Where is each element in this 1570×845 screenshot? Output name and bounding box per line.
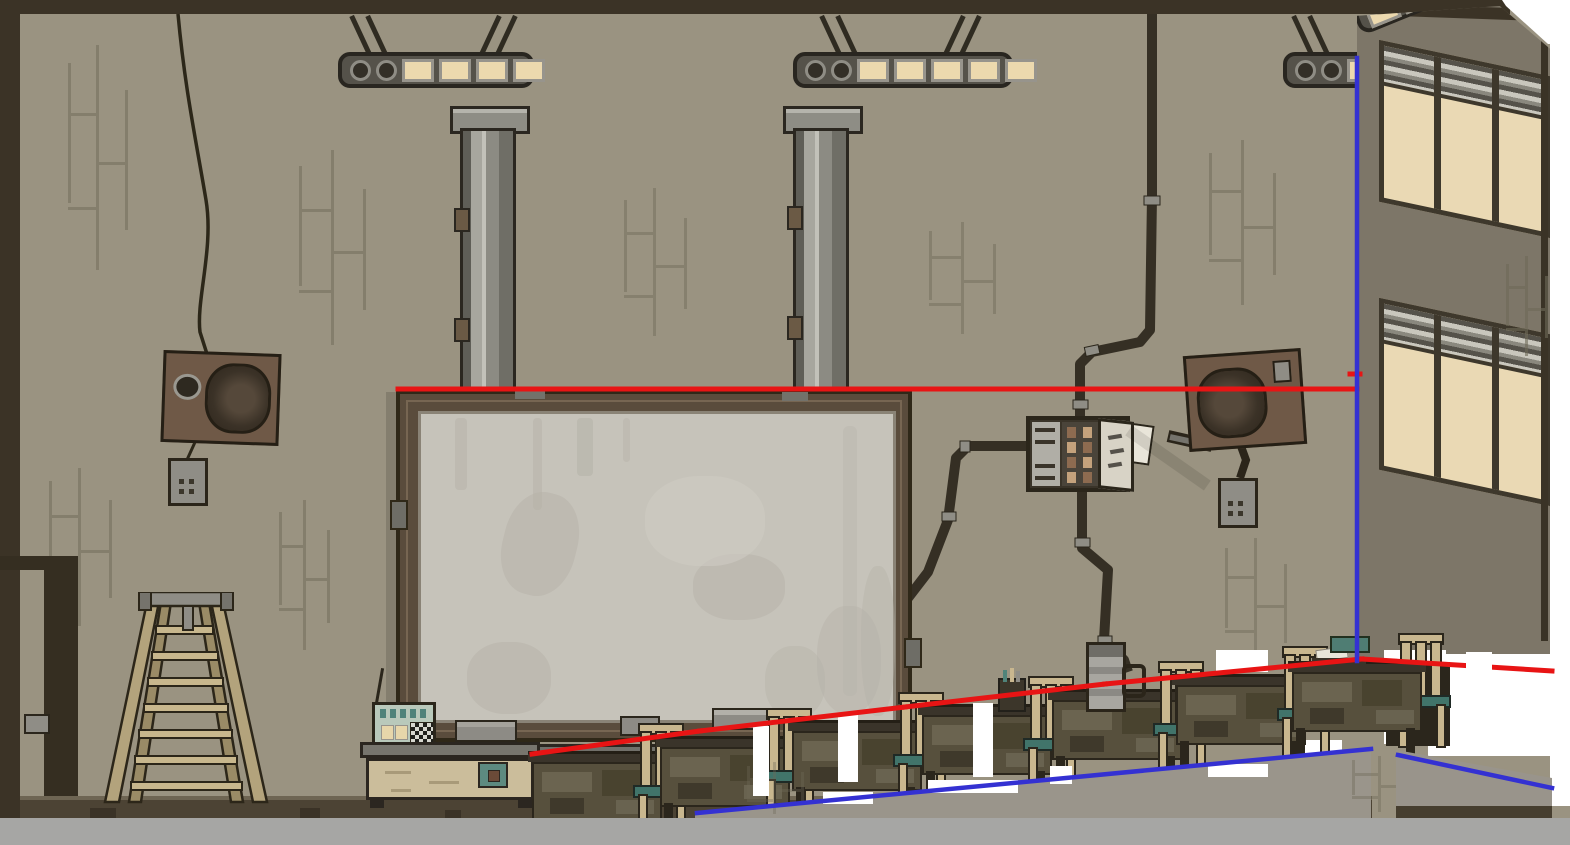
white-notch (1466, 652, 1492, 676)
classroom-scene (0, 0, 1570, 845)
annotation-lines (0, 0, 1570, 845)
